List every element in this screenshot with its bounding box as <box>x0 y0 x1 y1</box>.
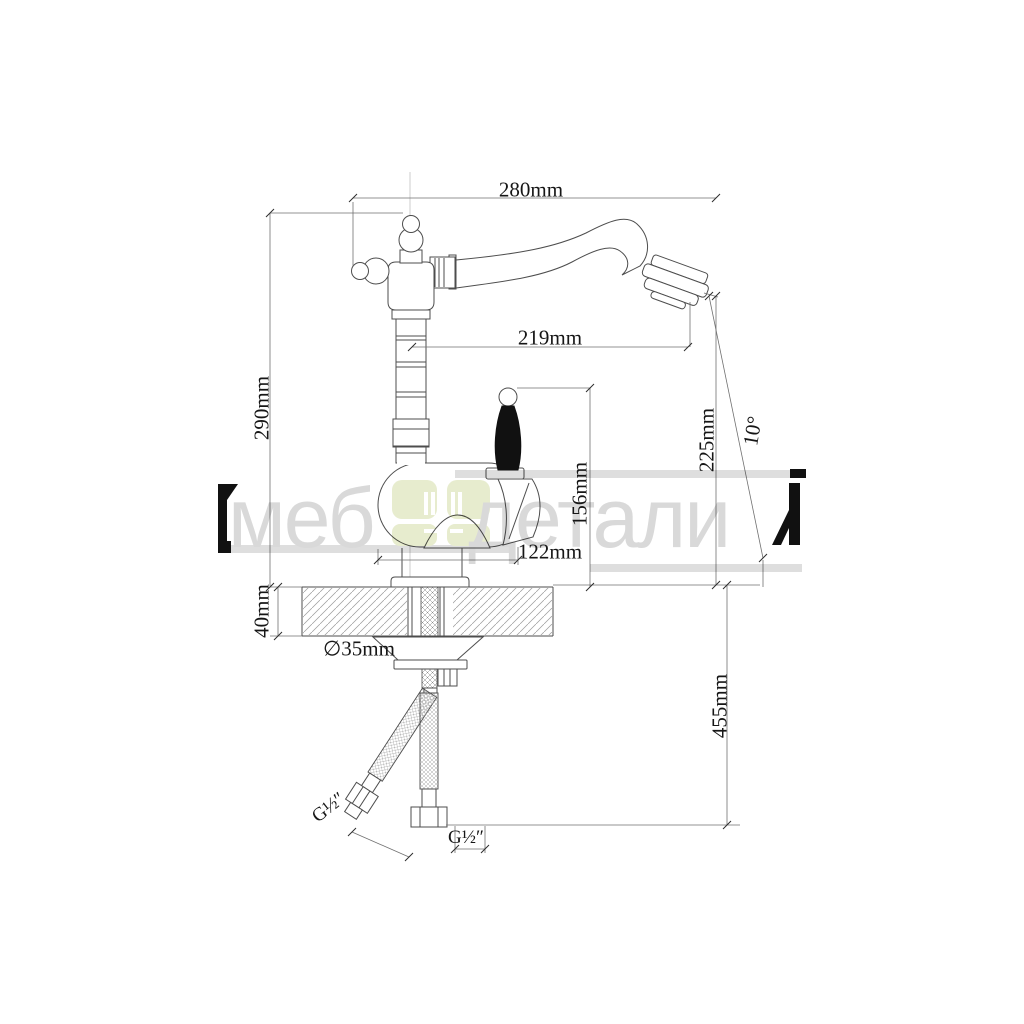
dim-label-body-width: 122mm <box>518 540 582 565</box>
handle-lever <box>495 406 521 470</box>
crown-body <box>388 262 434 310</box>
diverter-knob-tip <box>352 263 369 280</box>
spout <box>456 219 648 288</box>
aerator <box>635 252 713 315</box>
base-flange <box>391 577 469 587</box>
dim-label-deck-thickness: 40mm <box>250 584 275 638</box>
dim-label-thread-right: G½″ <box>448 827 484 849</box>
dim-label-spout-span: 280mm <box>499 178 563 203</box>
faucet-technical-drawing <box>0 0 1024 1024</box>
base-neck <box>402 548 462 577</box>
countertop-section <box>302 587 553 636</box>
handle-ball <box>499 388 517 406</box>
dim-label-handle-height: 156mm <box>568 462 593 526</box>
dim-label-hole-diameter: ∅35mm <box>323 637 395 662</box>
drawing-canvas: меб детали 280mm 219mm 290mm 225mm 10° 1… <box>0 0 1024 1024</box>
dim-label-outlet-height: 225mm <box>695 408 720 472</box>
dim-label-hose-drop: 455mm <box>708 674 733 738</box>
column <box>392 310 430 463</box>
crown-ball-small <box>403 216 420 233</box>
dim-label-spout-angle: 10° <box>738 414 768 447</box>
dim-label-spout-reach: 219mm <box>518 326 582 351</box>
dim-label-total-height: 290mm <box>250 376 275 440</box>
